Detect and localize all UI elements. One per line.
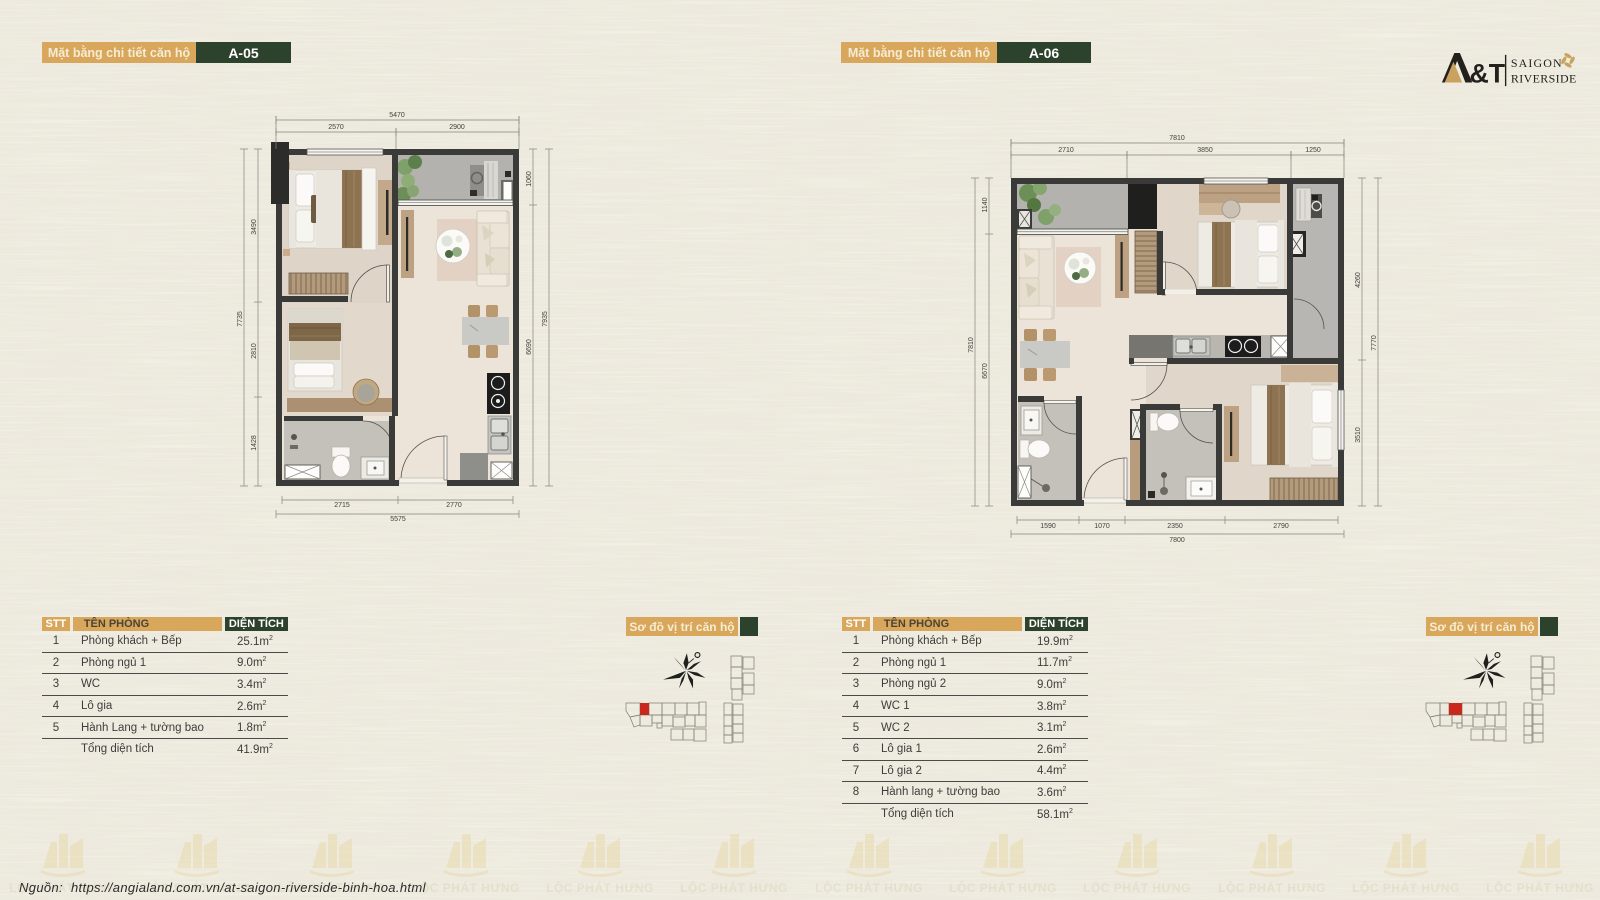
svg-text:3850: 3850: [1197, 147, 1213, 154]
svg-text:2900: 2900: [449, 124, 465, 131]
svg-text:2715: 2715: [334, 502, 350, 509]
svg-text:2770: 2770: [446, 502, 462, 509]
svg-text:7810: 7810: [968, 337, 975, 353]
svg-text:6690: 6690: [526, 339, 533, 355]
svg-text:2790: 2790: [1273, 523, 1289, 530]
svg-text:SAIGON: SAIGON: [1511, 56, 1563, 70]
svg-text:1428: 1428: [251, 435, 258, 451]
svg-text:7935: 7935: [542, 311, 549, 327]
svg-text:&T: &T: [1470, 58, 1506, 88]
svg-text:5470: 5470: [389, 112, 405, 119]
svg-text:7735: 7735: [237, 311, 244, 327]
svg-text:1590: 1590: [1040, 523, 1056, 530]
svg-text:7770: 7770: [1371, 335, 1378, 351]
svg-text:3490: 3490: [251, 219, 258, 235]
svg-text:2570: 2570: [328, 124, 344, 131]
svg-text:2810: 2810: [251, 343, 258, 359]
svg-text:2710: 2710: [1058, 147, 1074, 154]
svg-text:7800: 7800: [1169, 537, 1185, 544]
svg-text:2350: 2350: [1167, 523, 1183, 530]
svg-text:6670: 6670: [982, 363, 989, 379]
svg-text:RIVERSIDE: RIVERSIDE: [1511, 71, 1577, 85]
svg-text:5575: 5575: [390, 516, 406, 523]
svg-text:1070: 1070: [1094, 523, 1110, 530]
svg-text:3510: 3510: [1355, 427, 1362, 443]
svg-text:4260: 4260: [1355, 272, 1362, 288]
svg-text:7810: 7810: [1169, 135, 1185, 142]
svg-text:1140: 1140: [982, 197, 989, 212]
svg-text:1060: 1060: [526, 171, 533, 187]
svg-text:1250: 1250: [1305, 147, 1321, 154]
